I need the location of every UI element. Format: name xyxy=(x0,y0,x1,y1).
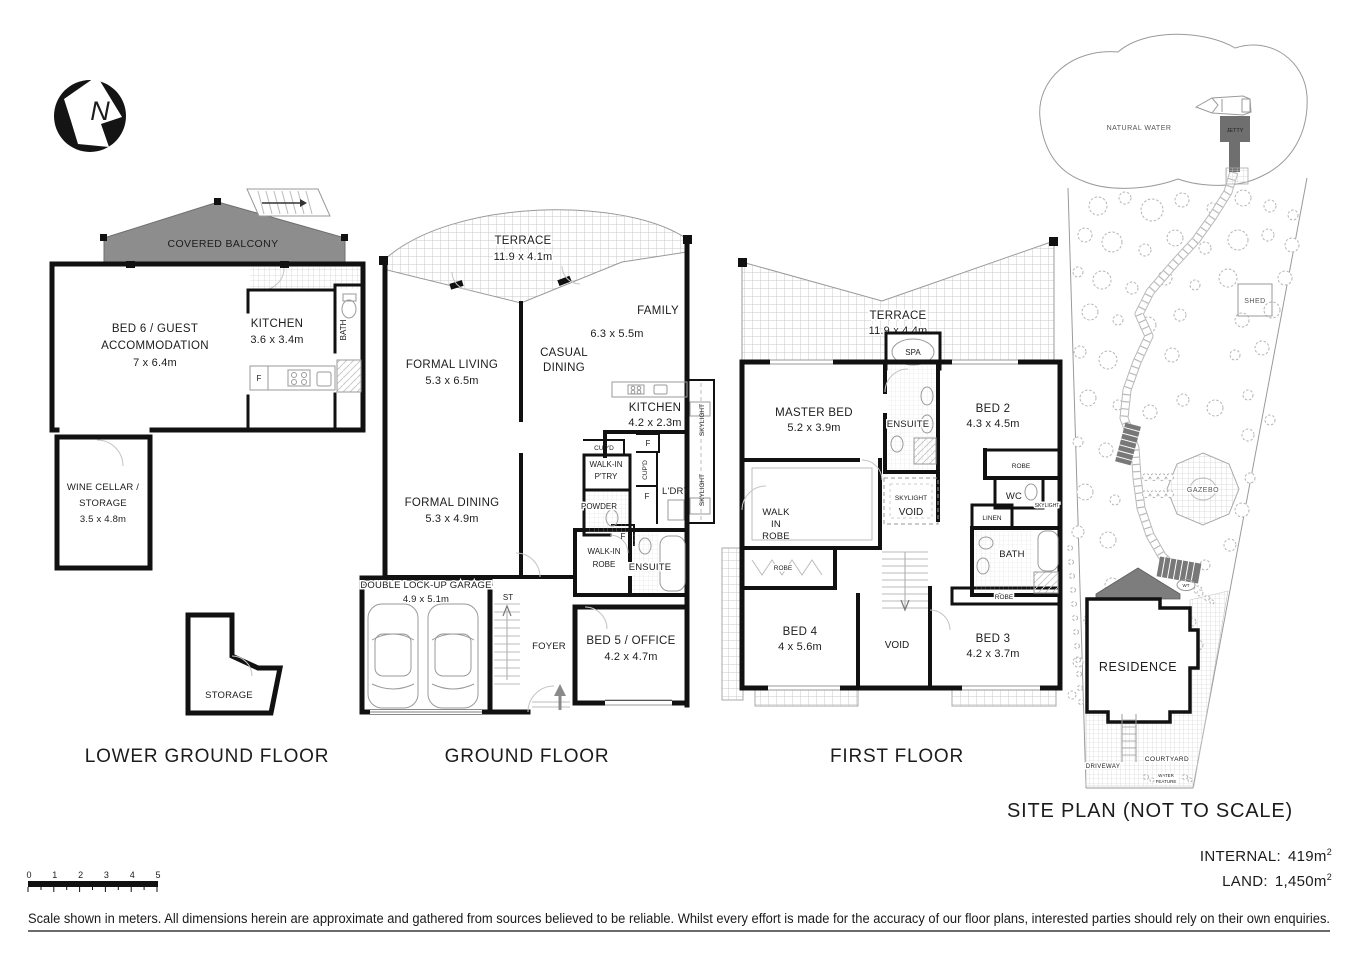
bed4-dim: 4 x 5.6m xyxy=(778,641,822,653)
skylight-void-label2: VOID xyxy=(899,507,923,518)
land-area: LAND:1,450m2 xyxy=(1222,872,1332,890)
scale-bar: 0 1 2 3 4 5 xyxy=(26,870,160,892)
ground-floor-plan: TERRACE 11.9 x 4.1m xyxy=(360,210,714,767)
ff-ensuite-fixtures xyxy=(888,365,936,469)
pantry-label: WALK-IN xyxy=(589,460,622,469)
kitchen-bench xyxy=(250,366,335,390)
gf-wir-label2: ROBE xyxy=(593,560,616,569)
compass-north-letter: N xyxy=(90,96,110,126)
master-bed-label: MASTER BED xyxy=(775,407,853,419)
gf-terrace: TERRACE 11.9 x 4.1m xyxy=(379,210,692,303)
entry-porch xyxy=(528,684,570,712)
robe-label: ROBE xyxy=(995,594,1014,601)
gf-stairs-icon xyxy=(494,604,520,684)
courtyard-label: COURTYARD xyxy=(1145,756,1189,763)
lg-fridge-label: F xyxy=(257,374,262,383)
boat-icon xyxy=(1196,96,1251,115)
ground-floor-title: GROUND FLOOR xyxy=(445,746,610,767)
skylight-label: SKYLIGHT xyxy=(699,474,706,506)
laundry-label: L'DRY xyxy=(662,486,690,497)
water-tank-label: WT xyxy=(1183,583,1190,588)
robe-label: ROBE xyxy=(774,565,793,572)
master-bed-dim: 5.2 x 3.9m xyxy=(787,422,840,434)
bed2-dim: 4.3 x 4.5m xyxy=(966,418,1019,430)
void-label: VOID xyxy=(885,640,909,651)
garage-dim: 4.9 x 5.1m xyxy=(403,594,449,605)
floorplan-canvas: N COVERED BALCONY xyxy=(0,0,1358,960)
car-icon xyxy=(428,604,478,708)
site-plan-title: SITE PLAN (NOT TO SCALE) xyxy=(1007,800,1293,822)
covered-balcony-label: COVERED BALCONY xyxy=(167,238,278,250)
linen-label: LINEN xyxy=(982,515,1001,522)
wine-cellar-dim: 3.5 x 4.8m xyxy=(80,514,126,525)
bed5-dim: 4.2 x 4.7m xyxy=(604,651,657,663)
car-icon xyxy=(368,604,418,708)
bed6-label2: ACCOMMODATION xyxy=(101,340,209,352)
disclaimer-text: Scale shown in meters. All dimensions he… xyxy=(28,911,1330,926)
bath-label: BATH xyxy=(999,549,1024,560)
powder-label: POWDER xyxy=(581,502,617,511)
pantry-label2: P'TRY xyxy=(595,472,618,481)
foyer-label: FOYER xyxy=(532,641,566,652)
family-label: FAMILY xyxy=(637,305,679,317)
residence: RESIDENCE xyxy=(1087,599,1198,722)
formal-dining-dim: 5.3 x 4.9m xyxy=(425,513,478,525)
bed6-dim: 7 x 6.4m xyxy=(133,357,177,369)
gazebo: GAZEBO xyxy=(1167,453,1239,525)
cupboard-side-label: CUP'D xyxy=(642,460,649,480)
bed4-label: BED 4 xyxy=(783,626,818,638)
ff-terrace-label: TERRACE xyxy=(869,310,926,322)
scale-tick: 0 xyxy=(26,870,31,880)
casual-dining-label: CASUAL xyxy=(540,347,588,359)
gf-terrace-label: TERRACE xyxy=(494,235,551,247)
garage-label: DOUBLE LOCK-UP GARAGE xyxy=(360,580,491,591)
formal-living-label: FORMAL LIVING xyxy=(406,359,498,371)
skylight-void-label: SKYLIGHT xyxy=(895,495,927,502)
gf-ensuite-label: ENSUITE xyxy=(629,562,672,573)
ff-ensuite-label: ENSUITE xyxy=(887,419,930,430)
bath-label: BATH xyxy=(339,319,348,340)
north-compass-icon: N xyxy=(54,76,126,152)
lg-kitchen-label: KITCHEN xyxy=(251,318,304,330)
gf-kitchen-label: KITCHEN xyxy=(629,402,682,414)
ff-wir-label2: IN xyxy=(771,519,781,530)
natural-water-label: NATURAL WATER xyxy=(1107,125,1172,132)
covered-balcony: COVERED BALCONY xyxy=(100,189,348,264)
bed2-label: BED 2 xyxy=(976,403,1011,415)
spa-label: SPA xyxy=(905,348,921,357)
scale-tick: 2 xyxy=(78,870,83,880)
jetty-label: JETTY xyxy=(1227,128,1244,134)
fridge-label: F xyxy=(646,439,651,448)
skylight-label: SKYLIGHT xyxy=(699,404,706,436)
scale-tick: 5 xyxy=(155,870,160,880)
formal-dining-label: FORMAL DINING xyxy=(405,497,500,509)
natural-water-shape xyxy=(1040,34,1307,188)
internal-area: INTERNAL:419m2 xyxy=(1200,847,1332,865)
gazebo-label: GAZEBO xyxy=(1187,487,1219,494)
driveway-label: DRIVEWAY xyxy=(1086,764,1121,770)
fridge-label: F xyxy=(645,492,650,501)
scale-tick: 1 xyxy=(52,870,57,880)
wir-shelving xyxy=(752,468,872,540)
jetty: JETTY xyxy=(1220,116,1250,184)
cupboard-label: CUP'D xyxy=(594,445,614,452)
area-summary: INTERNAL:419m2 LAND:1,450m2 xyxy=(1200,847,1332,890)
fridge-label: F xyxy=(621,532,626,541)
water-feature-label: WATER xyxy=(1158,773,1174,778)
bed3-dim: 4.2 x 3.7m xyxy=(966,648,1019,660)
bed3-label: BED 3 xyxy=(976,633,1011,645)
wine-cellar-label: WINE CELLAR / xyxy=(67,482,139,493)
floorplan-page: N COVERED BALCONY xyxy=(0,0,1358,960)
ff-wir-label3: ROBE xyxy=(762,531,790,542)
bed6-label: BED 6 / GUEST xyxy=(112,323,198,335)
scale-tick: 4 xyxy=(130,870,135,880)
formal-living-dim: 5.3 x 6.5m xyxy=(425,375,478,387)
lower-ground-floor-title: LOWER GROUND FLOOR xyxy=(85,746,330,767)
ff-stairs-icon xyxy=(882,552,928,610)
shed-label: SHED xyxy=(1244,298,1265,305)
robe-label: ROBE xyxy=(1012,463,1031,470)
wc-label: WC xyxy=(1006,491,1022,502)
skylight-label: SKYLIGHT xyxy=(1035,503,1060,509)
rear-balcony xyxy=(952,690,1056,706)
lg-kitchen-dim: 3.6 x 3.4m xyxy=(250,334,303,346)
first-floor-plan: TERRACE 11.9 x 4.4m SPA xyxy=(722,237,1060,767)
casual-dining-label2: DINING xyxy=(543,362,585,374)
water-feature-label2: FEATURE xyxy=(1156,779,1177,784)
family-dim: 6.3 x 5.5m xyxy=(590,328,643,340)
disclaimer: Scale shown in meters. All dimensions he… xyxy=(28,911,1330,931)
first-floor-title: FIRST FLOOR xyxy=(830,746,964,767)
gf-wir-label: WALK-IN xyxy=(587,547,620,556)
stairs-label: ST xyxy=(503,593,513,602)
scale-tick: 3 xyxy=(104,870,109,880)
rear-balcony xyxy=(755,690,858,706)
bathroom-fixtures xyxy=(337,294,361,392)
wine-cellar-label2: STORAGE xyxy=(79,498,127,509)
storage-label: STORAGE xyxy=(205,690,253,701)
ff-wir-label: WALK xyxy=(762,507,790,518)
lower-ground-floor-plan: COVERED BALCONY xyxy=(52,189,363,767)
gf-terrace-dim: 11.9 x 4.1m xyxy=(494,251,553,263)
residence-label: RESIDENCE xyxy=(1099,660,1177,674)
gf-kitchen-dim: 4.2 x 2.3m xyxy=(628,417,681,429)
bed5-label: BED 5 / OFFICE xyxy=(586,635,675,647)
